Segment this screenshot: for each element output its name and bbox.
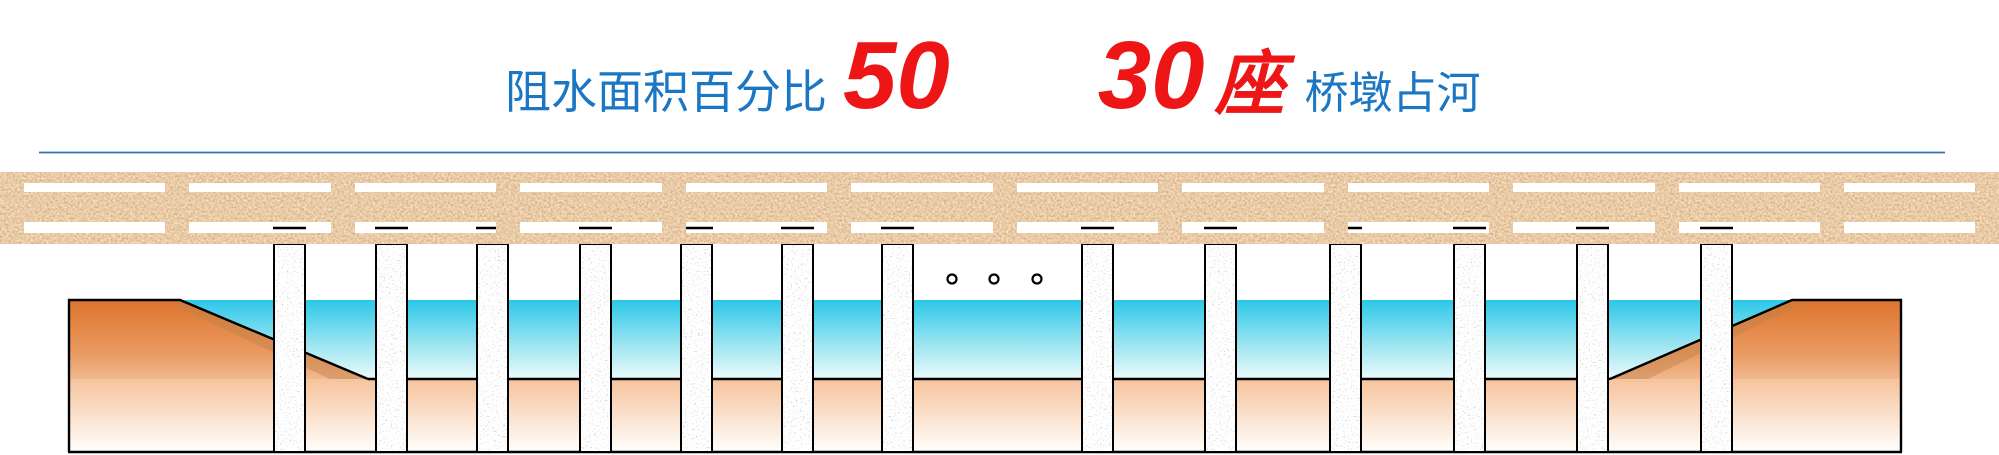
ellipsis-dots	[948, 275, 1042, 284]
bridge-pier	[274, 244, 305, 452]
title-row: 阻水面积百分比 50 30 座 桥墩占河	[505, 28, 1481, 124]
bridge-pier-diagram: 阻水面积百分比 50 30 座 桥墩占河	[0, 0, 1999, 455]
railing-post	[0, 172, 24, 244]
ellipsis-dot	[1033, 275, 1042, 284]
railing-post	[1324, 172, 1348, 244]
railing-post	[1655, 172, 1679, 244]
blocking-area-label: 阻水面积百分比	[505, 69, 827, 115]
piers-occupy-river-label: 桥墩占河	[1305, 72, 1481, 116]
bridge-deck	[0, 172, 1999, 244]
bridge-pier	[376, 244, 407, 452]
railing-post	[1820, 172, 1844, 244]
blocking-percent-value: 50	[843, 28, 950, 124]
pier-count-value: 30	[1098, 28, 1205, 124]
railing-post	[165, 172, 189, 244]
pier-count-unit: 座	[1215, 49, 1285, 119]
railing-post	[1158, 172, 1182, 244]
river-water	[69, 300, 1901, 379]
bridge-pier	[882, 244, 913, 452]
railing-post	[1975, 172, 1999, 244]
bridge-pier	[580, 244, 611, 452]
bridge-pier	[681, 244, 712, 452]
ellipsis-dot	[948, 275, 957, 284]
bridge-pier	[782, 244, 813, 452]
bridge-pier	[1330, 244, 1361, 452]
bridge-pier	[1701, 244, 1732, 452]
bridge-pier	[1454, 244, 1485, 452]
railing-post	[662, 172, 686, 244]
railing-post	[993, 172, 1017, 244]
bridge-pier	[1082, 244, 1113, 452]
riverbed	[69, 379, 1901, 452]
bridge-pier	[1205, 244, 1236, 452]
railing-post	[827, 172, 851, 244]
railing-post	[331, 172, 355, 244]
bridge-pier	[477, 244, 508, 452]
ellipsis-dot	[990, 275, 999, 284]
railing-post	[496, 172, 520, 244]
railing-post	[1489, 172, 1513, 244]
bridge-pier	[1577, 244, 1608, 452]
